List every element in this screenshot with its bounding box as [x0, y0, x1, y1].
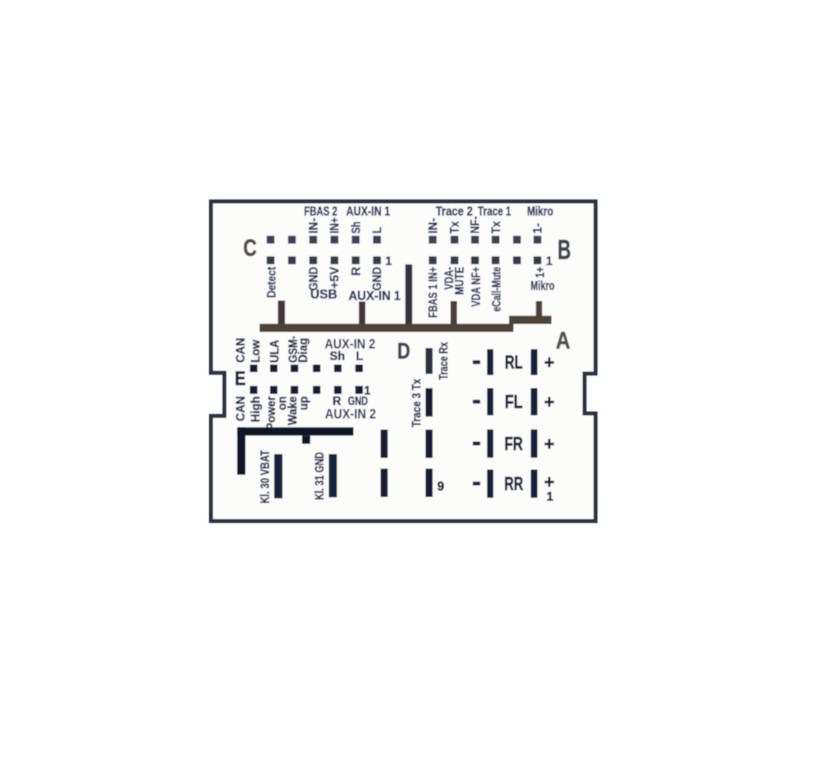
svg-text:FR: FR — [504, 434, 523, 454]
svg-text:ULA: ULA — [268, 339, 282, 362]
svg-text:Trace 2: Trace 2 — [436, 205, 473, 219]
svg-text:RR: RR — [504, 474, 523, 494]
svg-text:VDA NF+: VDA NF+ — [469, 267, 483, 307]
svg-text:CAN: CAN — [234, 338, 248, 363]
svg-text:Tx: Tx — [448, 221, 462, 234]
svg-text:eCall-Mute: eCall-Mute — [490, 267, 504, 312]
svg-text:E: E — [235, 369, 246, 390]
svg-text:AUX-IN 2: AUX-IN 2 — [325, 405, 376, 421]
svg-text:Trace 3 Tx: Trace 3 Tx — [409, 378, 423, 427]
svg-text:L: L — [356, 349, 363, 363]
svg-text:CAN: CAN — [234, 396, 248, 421]
svg-text:9: 9 — [437, 480, 444, 494]
svg-text:D: D — [397, 339, 410, 364]
svg-text:Kl. 30 VBAT: Kl. 30 VBAT — [258, 449, 272, 503]
svg-text:+5V: +5V — [328, 267, 342, 289]
svg-text:Sh: Sh — [349, 222, 363, 234]
svg-text:AUX-IN 1: AUX-IN 1 — [346, 205, 390, 219]
svg-text:Trace 1: Trace 1 — [478, 205, 511, 219]
svg-text:FBAS 1 IN+: FBAS 1 IN+ — [426, 267, 440, 318]
svg-text:IN-: IN- — [306, 218, 320, 234]
svg-text:B: B — [557, 234, 571, 265]
svg-text:MUTE: MUTE — [453, 267, 467, 295]
svg-text:Diag: Diag — [296, 338, 310, 363]
svg-text:L: L — [370, 227, 384, 234]
svg-text:+: + — [544, 352, 555, 372]
svg-text:R: R — [349, 266, 363, 275]
svg-text:Kl. 31 GND: Kl. 31 GND — [312, 452, 326, 500]
svg-text:IN-: IN- — [426, 218, 440, 234]
svg-text:1: 1 — [546, 254, 553, 268]
svg-text:Sh: Sh — [330, 349, 345, 363]
svg-text:1: 1 — [385, 254, 392, 268]
svg-text:+: + — [544, 434, 555, 454]
svg-text:Detect: Detect — [265, 267, 279, 298]
svg-text:Trace Rx: Trace Rx — [436, 342, 450, 380]
svg-text:FL: FL — [505, 392, 523, 412]
svg-text:1-: 1- — [531, 223, 545, 234]
svg-text:GND: GND — [370, 267, 384, 291]
svg-text:Mikro: Mikro — [527, 205, 554, 219]
svg-text:A: A — [556, 328, 571, 355]
svg-text:Mikro: Mikro — [531, 279, 555, 293]
svg-text:C: C — [243, 235, 257, 262]
svg-text:1: 1 — [547, 489, 554, 503]
svg-text:Low: Low — [248, 339, 262, 363]
svg-text:FBAS 2: FBAS 2 — [304, 205, 337, 219]
svg-text:USB: USB — [310, 288, 337, 302]
svg-text:1+: 1+ — [533, 267, 547, 278]
svg-text:+: + — [544, 392, 555, 412]
svg-text:up: up — [297, 396, 311, 410]
svg-text:High: High — [248, 396, 262, 422]
svg-text:AUX-IN 1: AUX-IN 1 — [348, 289, 400, 303]
svg-text:RL: RL — [505, 353, 523, 373]
svg-text:IN+: IN+ — [328, 217, 342, 234]
svg-text:NF-: NF- — [468, 216, 482, 234]
svg-text:Tx: Tx — [489, 221, 503, 234]
